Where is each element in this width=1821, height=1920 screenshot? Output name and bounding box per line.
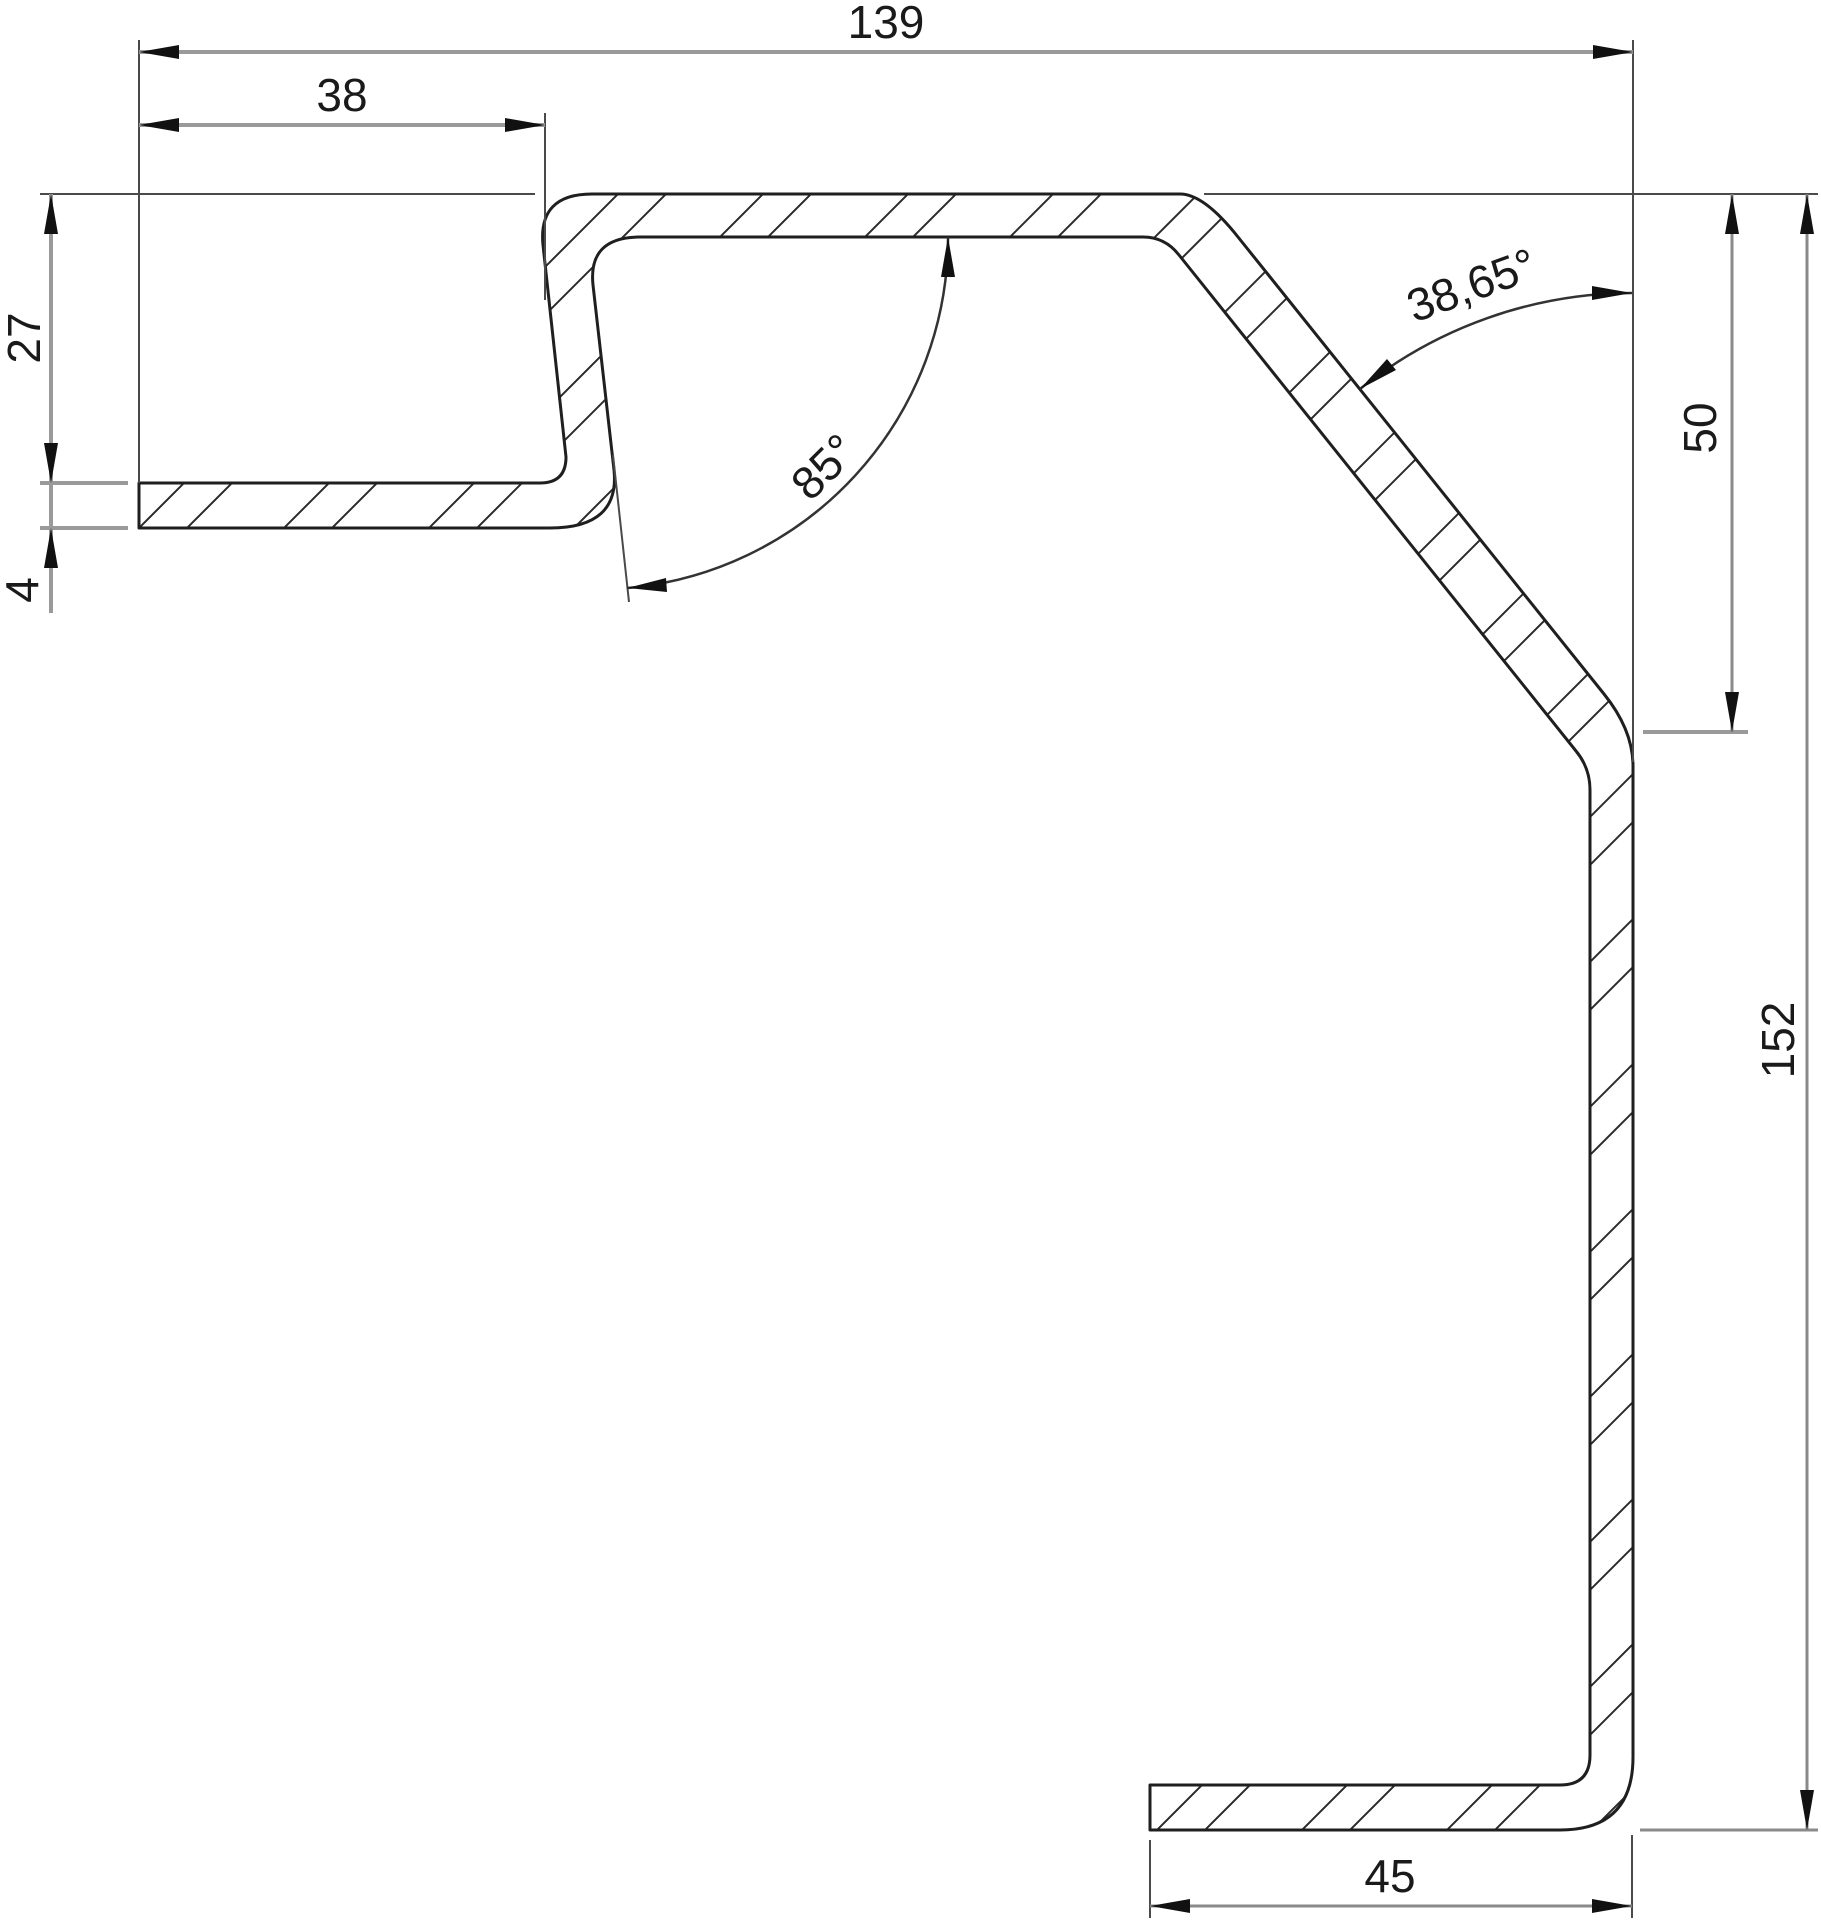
hatch-line [205,100,1821,1920]
hatch-line [0,100,1437,1920]
hatch-line [1317,100,1821,1920]
hatch-line [1027,100,1821,1920]
dimension-left-height: 27 [0,194,58,483]
dimension-label-38: 38 [316,69,367,121]
section-hatching [0,100,1821,1920]
arrowhead [44,528,58,568]
dimension-label-45: 45 [1364,1850,1415,1902]
arrowhead [1150,1899,1190,1913]
hatch-line [0,100,857,1920]
dimension-label-3865deg: 38,65° [1400,238,1543,333]
arrowhead [1725,692,1739,732]
hatch-line [0,100,1727,1920]
arrowhead [1360,359,1396,389]
arrowhead [1800,194,1814,234]
hatch-line [12,100,1821,1920]
hatch-line [640,100,1821,1920]
hatch-line [592,100,1821,1920]
arrowhead [1592,1899,1632,1913]
arrowhead [627,578,667,592]
hatch-line [302,100,1821,1920]
dimension-bottom-flange-width: 45 [1150,1850,1632,1913]
hatch-line [157,100,1821,1920]
hatch-line [0,100,567,1920]
hatch-line [1172,100,1821,1920]
hatch-line [0,100,1195,1920]
arrowhead [139,118,179,132]
arrowhead [44,194,58,234]
hatch-line [447,100,1821,1920]
arrowhead [1800,1790,1814,1830]
hatch-line [0,100,1485,1920]
arrowhead [941,237,955,277]
angle-arc-3865 [1360,293,1632,389]
extension-web-angle [613,455,629,602]
dimension-label-50: 50 [1674,402,1726,453]
arrowhead [1593,45,1633,59]
dimension-upper-flange-width: 38 [139,69,545,132]
hatch-line [0,100,1775,1920]
hatch-line [495,100,1821,1920]
dimension-bevel-angle: 38,65° [1360,238,1632,389]
cad-drawing-canvas: 139 38 27 4 50 152 45 [0,0,1821,1920]
arrowhead [139,45,179,59]
dimension-sheet-thickness: 4 [0,483,58,613]
hatch-line [0,100,615,1920]
hatch-line [0,100,760,1920]
dimension-total-width: 139 [139,0,1633,59]
hatch-line [0,100,1147,1920]
hatch-line [0,100,1050,1920]
dimension-s-bend-angle: 85° [627,237,955,592]
arrowhead [505,118,545,132]
dimension-total-height: 152 [1752,194,1814,1830]
hatch-line [737,100,1821,1920]
arrowhead [44,443,58,483]
technical-drawing: 139 38 27 4 50 152 45 [0,0,1821,1920]
hatch-line [0,100,905,1920]
hatch-line [60,100,1821,1920]
arrowhead [1725,194,1739,234]
hatch-line [1075,100,1821,1920]
dimension-bevel-drop: 50 [1674,194,1739,732]
hatch-line [0,100,1292,1920]
arrowhead [1592,286,1632,300]
hatch-line [0,100,712,1920]
extension-lines [40,40,1818,1918]
hatch-line [0,100,1002,1920]
dimension-label-4: 4 [0,577,48,603]
dimension-label-85deg: 85° [781,424,867,510]
hatch-line [882,100,1821,1920]
hatch-line [785,100,1821,1920]
profile-outline [139,194,1633,1830]
hatch-line [350,100,1821,1920]
dimension-label-27: 27 [0,312,50,363]
dimension-label-152: 152 [1752,1002,1804,1079]
hatch-line [0,100,1340,1920]
hatch-line [0,100,1582,1920]
angle-arc-85 [627,237,948,588]
dimension-label-139: 139 [848,0,925,48]
